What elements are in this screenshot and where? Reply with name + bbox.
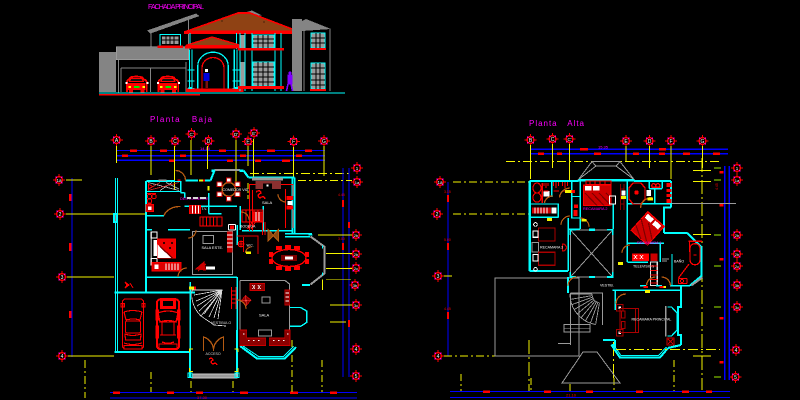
svg-text:VESTIB.: VESTIB. — [600, 284, 614, 288]
svg-text:C': C' — [190, 132, 194, 137]
svg-text:RECAMARA 2: RECAMARA 2 — [583, 207, 607, 211]
svg-text:G: G — [322, 139, 326, 145]
svg-text:2: 2 — [59, 212, 62, 218]
svg-text:BODEGA: BODEGA — [240, 225, 256, 229]
svg-text:1a: 1a — [355, 180, 360, 185]
svg-text:3c: 3c — [354, 303, 358, 308]
svg-text:4: 4 — [355, 347, 358, 353]
svg-text:3b: 3b — [353, 283, 358, 288]
svg-text:4: 4 — [437, 354, 440, 360]
svg-text:C': C' — [567, 137, 571, 142]
svg-text:5.00: 5.00 — [444, 238, 451, 242]
svg-text:C: C — [173, 139, 177, 145]
svg-text:SALA: SALA — [259, 313, 270, 318]
svg-text:D: D — [648, 139, 652, 145]
svg-text:E': E' — [252, 131, 256, 136]
svg-text:1a: 1a — [437, 180, 443, 185]
svg-text:SALA ESTE.: SALA ESTE. — [202, 246, 224, 250]
svg-text:Planta Alta: Planta Alta — [529, 119, 585, 128]
svg-text:2b: 2b — [354, 252, 359, 257]
svg-text:3c: 3c — [735, 305, 739, 310]
svg-text:3b: 3b — [735, 283, 740, 288]
svg-text:D': D' — [234, 132, 238, 137]
svg-text:3: 3 — [61, 275, 64, 281]
svg-text:BAÑO: BAÑO — [674, 259, 684, 264]
svg-text:3.15: 3.15 — [444, 190, 451, 194]
svg-text:F: F — [669, 139, 672, 145]
svg-text:4.45: 4.45 — [715, 183, 719, 190]
svg-text:5: 5 — [734, 375, 737, 381]
svg-text:1a: 1a — [56, 178, 62, 183]
svg-text:ACCESO: ACCESO — [206, 352, 221, 356]
svg-text:3: 3 — [437, 274, 440, 280]
svg-text:2c: 2c — [735, 264, 739, 269]
svg-text:2b: 2b — [735, 233, 740, 238]
svg-text:2b: 2b — [735, 252, 740, 257]
svg-text:21.10: 21.10 — [566, 393, 577, 398]
svg-text:14.15: 14.15 — [200, 146, 211, 151]
svg-text:37.30: 37.30 — [197, 395, 208, 400]
svg-text:2c: 2c — [354, 266, 358, 271]
svg-text:SALA: SALA — [262, 200, 273, 205]
svg-text:FACHADA PRINCIPAL: FACHADA PRINCIPAL — [148, 4, 204, 11]
svg-text:2: 2 — [436, 212, 439, 218]
svg-text:4.45: 4.45 — [444, 307, 451, 311]
svg-text:RECAMARA 3: RECAMARA 3 — [540, 246, 563, 250]
svg-text:RECAMARA 1: RECAMARA 1 — [637, 241, 661, 245]
svg-text:COMEDOR VID.: COMEDOR VID. — [223, 188, 250, 192]
svg-text:VESTIBULO: VESTIBULO — [211, 321, 231, 325]
svg-text:15.35: 15.35 — [598, 145, 609, 150]
svg-text:F: F — [292, 140, 295, 146]
svg-text:1a: 1a — [735, 178, 740, 183]
svg-text:2b: 2b — [354, 233, 359, 238]
svg-text:3.00: 3.00 — [338, 237, 345, 241]
svg-text:5: 5 — [355, 374, 358, 380]
svg-text:C: C — [551, 137, 555, 143]
svg-text:T.V.: T.V. — [202, 207, 208, 211]
svg-text:4.45: 4.45 — [338, 193, 345, 197]
svg-text:4: 4 — [61, 354, 64, 360]
svg-text:4: 4 — [735, 348, 738, 354]
svg-text:G: G — [701, 139, 705, 145]
svg-text:D: D — [207, 139, 211, 145]
